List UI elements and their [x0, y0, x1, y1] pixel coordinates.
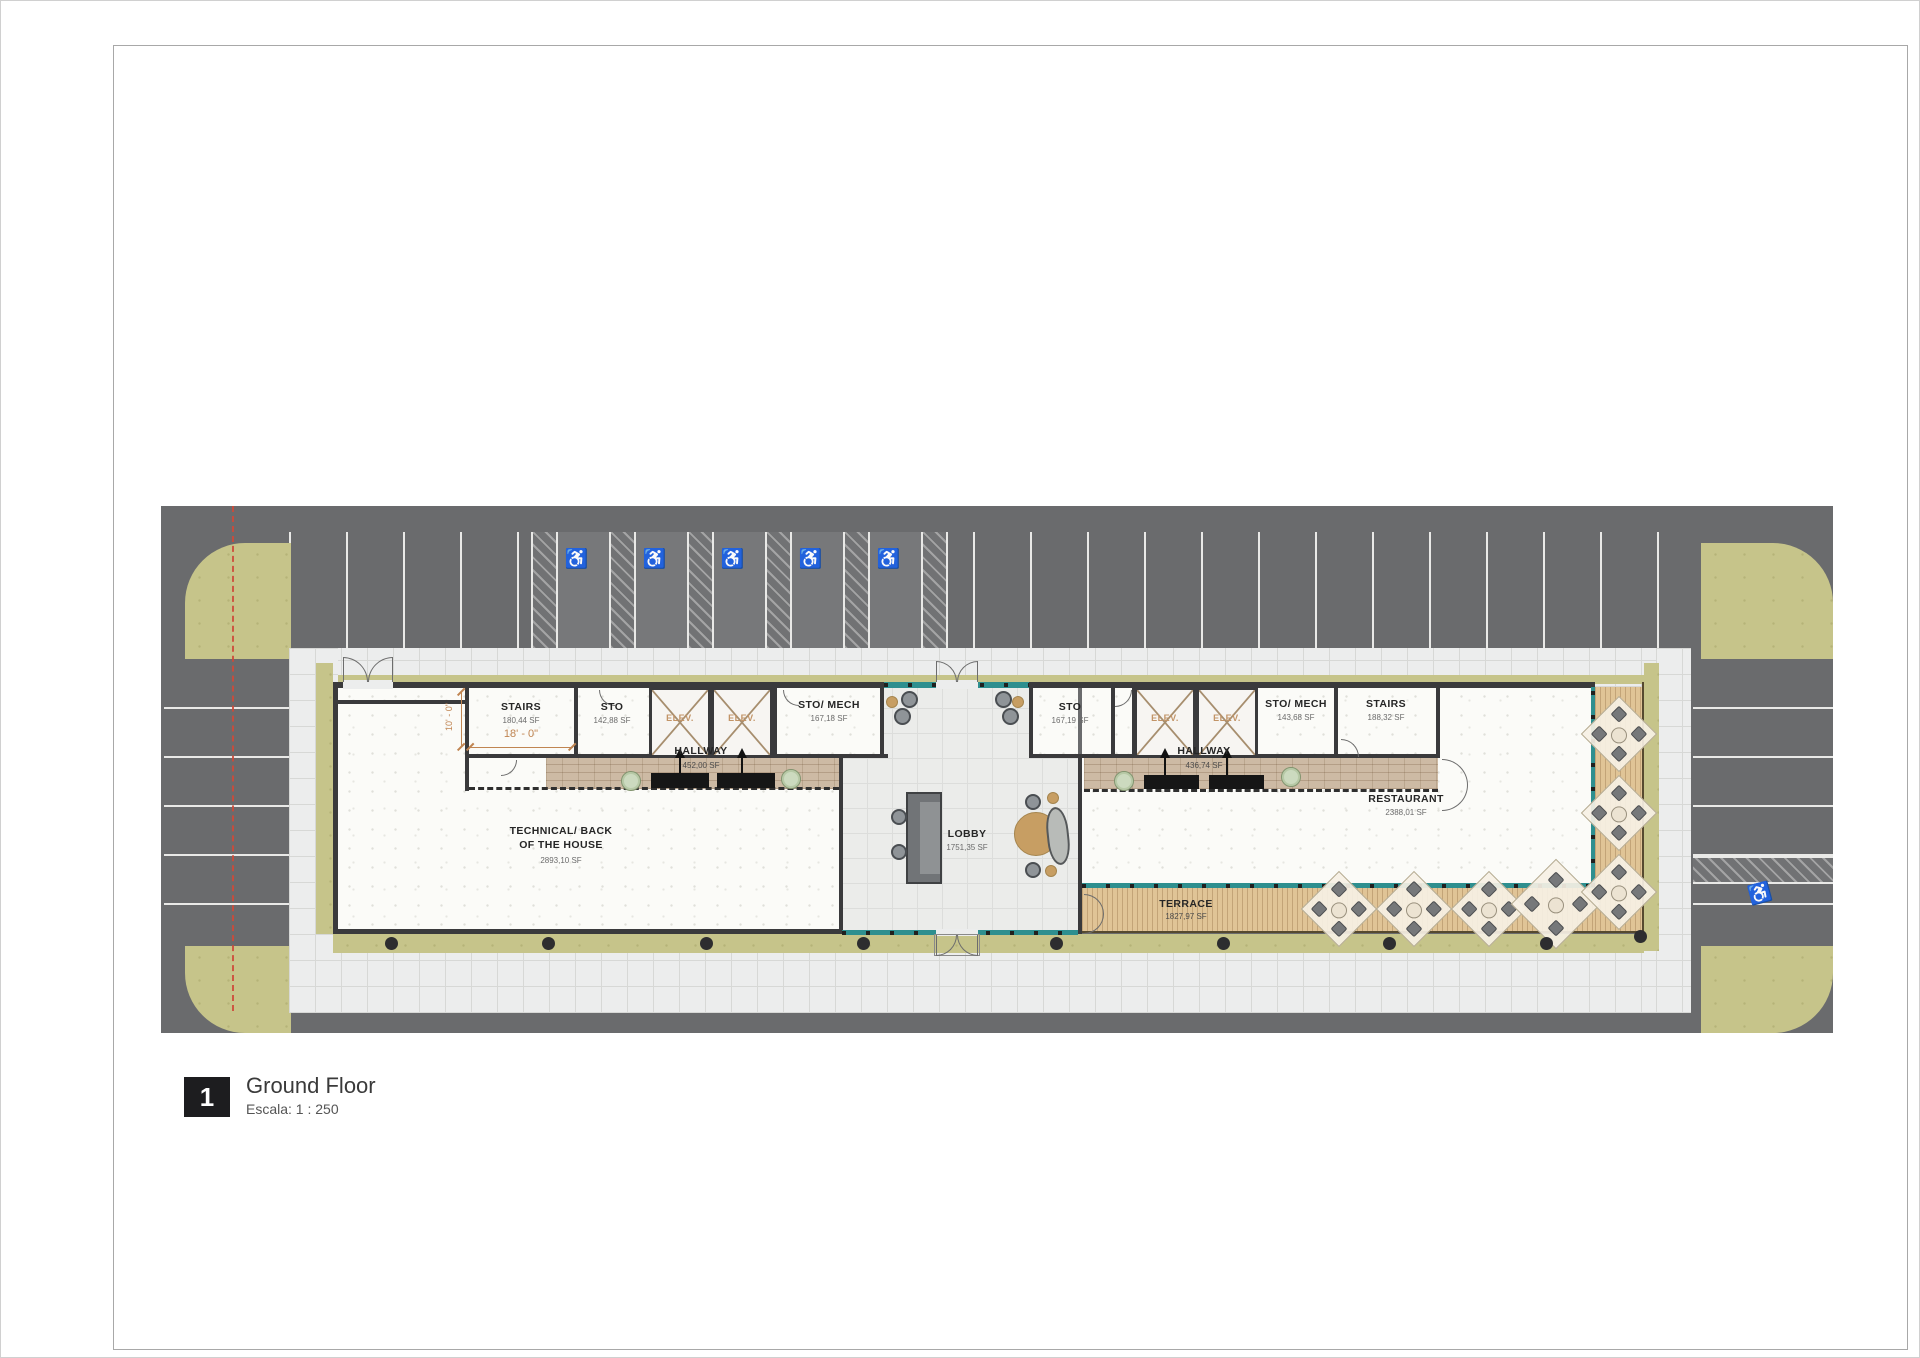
lobby-west-wall [839, 758, 843, 934]
lobby-chair [1025, 794, 1041, 810]
lobby-chair [894, 708, 911, 725]
side-table [1045, 865, 1057, 877]
dimension-line [461, 691, 462, 747]
column-dot [1634, 930, 1647, 943]
partition [574, 687, 578, 758]
accessible-parking-icon: ♿ [641, 549, 668, 571]
side-table [1012, 696, 1024, 708]
plant-icon [621, 771, 641, 791]
room-label-sto-mech-right: STO/ MECH [1265, 698, 1327, 710]
room-area-sto-mech-right: 143,68 SF [1278, 713, 1315, 722]
room-label-hallway-left: HALLWAY [674, 745, 727, 757]
room-area-hallway-right: 436,74 SF [1186, 761, 1223, 770]
access-aisle-hatch [1693, 856, 1833, 884]
room-area-sto-mech-left: 167,18 SF [811, 714, 848, 723]
accessible-parking-icon: ♿ [563, 549, 590, 571]
column-dot [542, 937, 555, 950]
access-aisle-hatch [531, 532, 558, 648]
dimension-depth-label: 10' - 0" [444, 703, 454, 731]
landscape-area [185, 543, 291, 659]
room-area-sto-left: 142,88 SF [594, 716, 631, 725]
parking-stall-lines-top [289, 532, 1691, 648]
reception-desk [906, 792, 942, 884]
partition [839, 754, 888, 758]
column-dot [1383, 937, 1396, 950]
room-label-terrace: TERRACE [1159, 898, 1213, 910]
accessible-parking-icon: ♿ [797, 549, 824, 571]
side-table [1047, 792, 1059, 804]
room-label-sto-right: STO [1059, 701, 1082, 713]
room-area-terrace: 1827,97 SF [1165, 912, 1206, 921]
column-dot [385, 937, 398, 950]
access-aisle-hatch [687, 532, 714, 648]
south-wall-left [333, 929, 842, 934]
access-aisle-hatch [609, 532, 636, 648]
room-label-hallway-right: HALLWAY [1177, 745, 1230, 757]
room-area-lobby: 1751,35 SF [946, 843, 987, 852]
partition [465, 687, 469, 791]
plant-icon [1281, 767, 1301, 787]
plant-icon [1114, 771, 1134, 791]
column-dot [1540, 937, 1553, 950]
restaurant-west-wall [1078, 758, 1082, 934]
room-label-sto-mech-left: STO/ MECH [798, 699, 860, 711]
elevator-label: ELEV. [1213, 713, 1241, 723]
view-title-number: 1 [184, 1077, 230, 1117]
accessible-parking-icon: ♿ [719, 549, 746, 571]
access-aisle-hatch [765, 532, 792, 648]
sidewalk-right [1656, 648, 1691, 1013]
room-label-sto-left: STO [601, 701, 624, 713]
partition [773, 687, 777, 758]
elevator-label: ELEV. [728, 713, 756, 723]
view-title-scale: Escala: 1 : 250 [246, 1101, 339, 1117]
room-label-stairs-right: STAIRS [1366, 698, 1406, 710]
drawing-sheet: ♿ ♿ ♿ ♿ ♿ ♿ [0, 0, 1920, 1358]
view-title-name: Ground Floor [246, 1073, 376, 1099]
west-wall [333, 682, 338, 934]
column-dot [1217, 937, 1230, 950]
access-aisle-hatch [843, 532, 870, 648]
room-area-restaurant: 2388,01 SF [1385, 808, 1426, 817]
glass-mullions [1591, 687, 1595, 887]
hallway-right-dashed-line [1084, 789, 1438, 792]
room-label-lobby: LOBBY [948, 828, 987, 840]
lobby-chair [891, 844, 907, 860]
lobby-chair [1002, 708, 1019, 725]
lobby-chair [891, 809, 907, 825]
room-label-technical-line2: OF THE HOUSE [519, 839, 603, 851]
hallway-bench [1144, 775, 1199, 789]
partition [880, 687, 884, 758]
room-area-technical: 2893,10 SF [540, 856, 581, 865]
sidewalk-bottom [289, 951, 1691, 1013]
side-table [886, 696, 898, 708]
lobby-chair [995, 691, 1012, 708]
room-label-technical-line1: TECHNICAL/ BACK [510, 825, 613, 837]
partition [1029, 687, 1033, 758]
dimension-width-label: 18' - 0" [504, 728, 538, 740]
column-dot [1050, 937, 1063, 950]
column-dot [857, 937, 870, 950]
plant-icon [781, 769, 801, 789]
hallway-bench [717, 773, 775, 788]
room-area-hallway-left: 452,00 SF [683, 761, 720, 770]
landscape-area [1701, 543, 1833, 659]
partition [1436, 687, 1440, 758]
room-label-stairs-left: STAIRS [501, 701, 541, 713]
partition [1334, 687, 1338, 758]
room-area-sto-right: 167,19 SF [1052, 716, 1089, 725]
room-label-restaurant: RESTAURANT [1368, 793, 1444, 805]
column-dot [700, 937, 713, 950]
lobby-chair [1025, 862, 1041, 878]
room-area-stairs-right: 188,32 SF [1368, 713, 1405, 722]
elevator-label: ELEV. [1151, 713, 1179, 723]
hallway-bench [1209, 775, 1264, 789]
room-area-stairs-left: 180,44 SF [503, 716, 540, 725]
planting-strip-left [316, 663, 333, 934]
elevator-label: ELEV. [666, 713, 694, 723]
accessible-parking-icon: ♿ [875, 549, 902, 571]
dimension-line [469, 747, 573, 748]
elevator-up-arrow-icon [1158, 748, 1172, 778]
lobby-chair [901, 691, 918, 708]
parking-stall-lines-left [164, 707, 289, 905]
property-line [232, 506, 234, 1011]
hallway-bench [651, 773, 709, 788]
planting-strip-bottom [333, 934, 1644, 953]
access-aisle-hatch [921, 532, 948, 648]
